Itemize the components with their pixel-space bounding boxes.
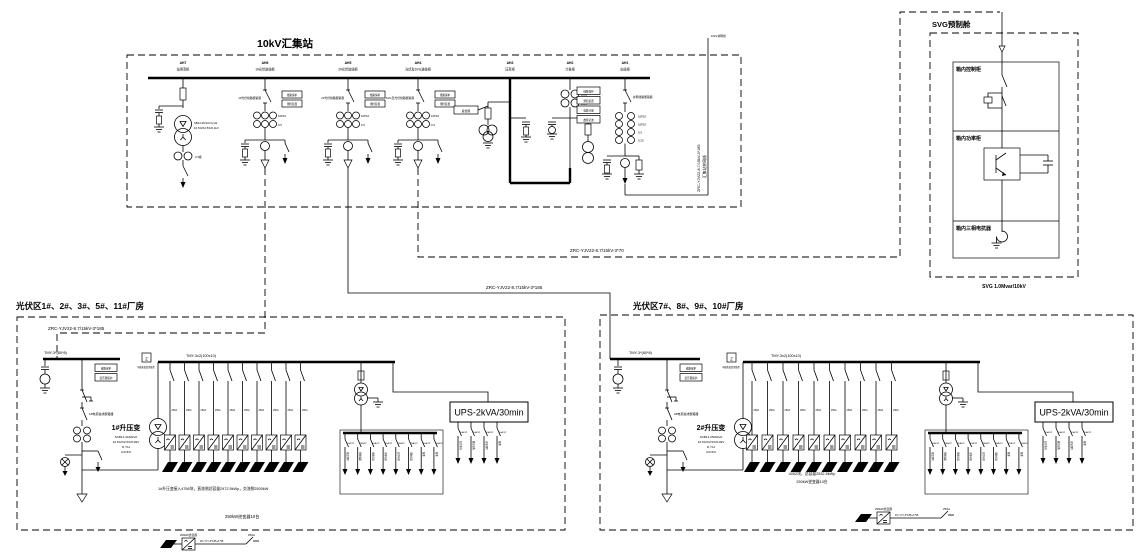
relay-box: 线路保护 (287, 93, 298, 97)
stamped-load-label: 通信设备 (1057, 441, 1061, 451)
stamped-breaker-label: 250A (785, 409, 791, 412)
inverter-strings-right: 250A250A250A250A250A250A250A250A250A250A (744, 362, 900, 472)
stamped-breaker-label: 10A/1P (486, 431, 494, 434)
inverter-strings-left: 250A250A250A250A250A250A250A250A250A250A (162, 362, 309, 472)
stamped-breaker-label: 250A (273, 409, 279, 412)
stamped-symbol (249, 362, 265, 472)
ct-label: 0.5 (361, 123, 365, 127)
stamped-breaker-label: 250A (831, 409, 837, 412)
legend-inverter-label: 250kW逆变器 (875, 507, 892, 511)
bay-id: AH4 (415, 61, 422, 65)
breaker-label: 并网线路断路器 (633, 95, 653, 99)
ct-label: 0.5 (638, 131, 642, 135)
bay-ah3: 避雷器 (454, 78, 570, 183)
relay-box: 变压器保护 (100, 376, 113, 380)
stamped-load-label: 监控电源 (397, 452, 401, 462)
relay-box: 测控装置 (370, 102, 381, 106)
stamped-symbol (264, 362, 280, 472)
breaker-label: 1#光伏线路断路器 (238, 96, 261, 100)
stamped-symbol (177, 362, 193, 472)
stamped-load-label: 备用 (498, 441, 502, 445)
stamped-load-label: 箱变照明 (931, 452, 935, 462)
stamped-breaker-label: 250A (878, 409, 884, 412)
stamped-breaker-label: 250A (847, 409, 853, 412)
inverter-count-left: 250kW逆变器10台 (225, 513, 259, 520)
stamped-load-label: 备用 (422, 452, 426, 456)
stamped-symbol (806, 362, 822, 472)
capacity-note-right-1: 4052块，总容量2532.5kWp (789, 471, 836, 476)
bay-ah7: SB14-30/10 Dyn11 10.5±2X2.5%/0.4kV 0.5级 (154, 78, 219, 188)
bay-name: 1#光伏进线柜 (255, 67, 275, 72)
meter-box-glyph: Z (145, 357, 148, 362)
relay-box: 变压器保护 (685, 376, 698, 380)
breaker-label: 2#电源进线断路器 (674, 411, 698, 416)
stamped-load-label: 风机电源 (956, 452, 960, 462)
hv-bay-right: 线路保护 变压器保护 2#电源进线断路器 (646, 359, 703, 502)
stamped-breaker-label: 10A/1P (460, 431, 468, 434)
svg-section-control: 箱内控制柜 (955, 66, 981, 73)
stamped-breaker-label: 10A/1P (1071, 431, 1079, 434)
grid-line-label: 10kV并网线 (711, 34, 726, 38)
stamped-symbol (868, 362, 884, 472)
stamped-breaker-label: 250A (302, 409, 308, 412)
stamped-breaker-label: 16A/1P (970, 442, 978, 445)
stamped-breaker-label: 250A (800, 409, 806, 412)
stamped-symbol (235, 362, 251, 472)
stamped-symbol (775, 362, 791, 472)
bay-ah6: 1#光伏线路断路器 线路保护 测控装置 10P10 0.5 (238, 78, 302, 168)
stamped-load-label: 箱变照明 (346, 452, 350, 462)
legend-inverter-label: 250kW逆变器 (180, 533, 197, 537)
station-service-transformer (175, 116, 192, 146)
stamped-breaker-label: 10A/1P (1084, 431, 1092, 434)
stamped-breaker-label: 16A/1P (436, 442, 444, 445)
pv-left-title: 光伏区1#、2#、3#、5#、11#厂房 (15, 301, 144, 311)
stamped-load-label: 通信设备 (472, 441, 476, 451)
stamped-load-label: 消防电源 (995, 452, 999, 462)
stamped-load-label: 监控电源 (982, 452, 986, 462)
aux-transformer-right (940, 362, 969, 433)
svg-section-reactor: 箱内三相电抗器 (955, 225, 992, 232)
hv-bus-label: TMY-3*(80*8) (629, 351, 653, 355)
relay-box: 电能计量 (583, 108, 594, 112)
ups-label-right: UPS-2kVA/30min (1039, 408, 1108, 418)
legend-breaker-label: 250A (943, 507, 950, 511)
stamped-symbol (191, 362, 207, 472)
stamped-load-label: 备用 (1083, 441, 1087, 445)
ct-label: 0.5 (278, 123, 282, 127)
breaker-label: 1#电源进线断路器 (89, 411, 113, 416)
trafo-spec: SB14-30/10 Dyn11 (194, 121, 218, 125)
meter-box-label: 电能质量监测装置 (137, 365, 155, 369)
bay-id: AH7 (180, 61, 187, 65)
stamped-breaker-label: 10A/1P (1045, 431, 1053, 434)
capacity-note-left: 1#升压变接入4756块，直流侧总容量2972.5kWp，交流侧2500kW (158, 486, 269, 491)
stamped-load-label: 水泵电源 (969, 452, 973, 462)
breaker-label: 2#光伏线路断路器 (321, 96, 344, 100)
stamped-load-label: 风机电源 (371, 452, 375, 462)
stamped-load-label: 水泵电源 (384, 452, 388, 462)
stamped-breaker-label: 10A/1P (1058, 431, 1066, 434)
ups-label-left: UPS-2kVA/30min (454, 408, 523, 418)
pt-arrester-branch (40, 360, 50, 393)
transformer-spec: D,Y11 (122, 445, 130, 449)
aux-panel-enclosure (925, 430, 1028, 494)
ups-feeders-right: 10A/1P监控系统10A/1P通信设备10A/1P应急照明10A/1P备用 (1041, 422, 1092, 464)
meter-box-glyph: Z (730, 357, 733, 362)
relay-box: 测控装置 (583, 99, 594, 103)
transformer-name: 1#升压变 (112, 423, 141, 432)
transformer-spec: Ud=6% (706, 450, 716, 454)
collection-station: 10kV汇集站 AH7站用变柜 AH61#光伏进线柜 AH52#光伏进线柜 AH… (127, 34, 741, 207)
stamped-breaker-label: 250A (172, 409, 178, 412)
pv-left-boundary (17, 317, 565, 530)
stamped-breaker-label: 10A/1P (499, 431, 507, 434)
legend-right: 250kW逆变器 ZC-YJY-3*185+1*95 250A (855, 507, 954, 524)
bay-id: AH1 (622, 61, 629, 65)
relay-box: 线路保护 (370, 93, 381, 97)
bay-id: AH6 (262, 61, 269, 65)
bay-id: AH2 (567, 61, 574, 65)
legend-left: 250kW逆变器 ZC-YJY-3*185+1*95 250A (160, 533, 259, 550)
stamped-breaker-label: 250A (244, 409, 250, 412)
stamped-load-label: 监控系统 (459, 441, 463, 451)
igbt-module (984, 148, 1020, 180)
cable-label-right: ZRC-YJV22-8.7/15kV-3*185 (486, 285, 543, 290)
cable-to-right-block (348, 168, 610, 359)
stamped-breaker-label: 250A (230, 409, 236, 412)
bay-headers: AH7站用变柜 AH61#光伏进线柜 AH52#光伏进线柜 AH4光伏及SVG进… (177, 61, 631, 72)
lv-bus-label: TMY-3x2(100x10) (186, 354, 217, 358)
stamped-load-label: 备用 (1007, 452, 1011, 456)
ct-label: 10P10 (638, 115, 647, 119)
stamped-breaker-label: 16A/1P (385, 442, 393, 445)
ups-feeders-left: 10A/1P监控系统10A/1P通信设备10A/1P应急照明10A/1P备用 (456, 422, 507, 464)
capacity-note-right-2: 250kW逆变器10台 (796, 479, 827, 484)
transformer-spec: SCB14-3150kVA (115, 435, 137, 439)
transformer-spec: Ud=6% (121, 450, 131, 454)
relay-box: 线路保护 (583, 89, 594, 93)
ct-label: 10P10 (638, 123, 647, 127)
relay-box: 线路保护 (440, 93, 451, 97)
stamped-breaker-label: 250A (186, 409, 192, 412)
pv-block-left: 光伏区1#、2#、3#、5#、11#厂房 TMY-3*(80*8) 线路保护 变… (15, 301, 565, 550)
stamped-symbol (791, 362, 807, 472)
ct-label: 10P10 (278, 114, 287, 118)
cable-routes: ZRC-YJV22-8.7/15kV-3*185 ZRC-YJV22-8.7/1… (48, 12, 1000, 359)
stamped-breaker-label: 16A/1P (411, 442, 419, 445)
bay-name: 光伏及SVG进线柜 (405, 67, 432, 72)
aux-feeders-right: 16A/1P箱变照明16A/1P检修插座16A/1P风机电源16A/1P水泵电源… (928, 433, 1029, 475)
bay-id: AH5 (345, 61, 352, 65)
arrester-label: 避雷器 (462, 109, 471, 113)
stamped-breaker-label: 16A/1P (996, 442, 1004, 445)
stamped-breaker-label: 16A/1P (372, 442, 380, 445)
stamped-breaker-label: 250A (769, 409, 775, 412)
stamped-breaker-label: 16A/1P (360, 442, 368, 445)
stamped-symbol (853, 362, 869, 472)
hv-bay-left: 线路保护 变压器保护 1#电源进线断路器 (61, 359, 118, 502)
bay-ah5: 2#光伏线路断路器 线路保护 测控装置 10P10 0.5 (321, 78, 385, 168)
step-up-transformer-right: 2#升压变 SCB14-2500kVA 10.5±2X2.5%/0.8kV D,… (697, 362, 752, 470)
bay-id: AH3 (507, 61, 514, 65)
stamped-symbol (162, 362, 178, 472)
stamped-breaker-label: 16A/1P (957, 442, 965, 445)
stamped-load-label: 检修插座 (359, 452, 363, 462)
stamped-breaker-label: 250A (201, 409, 207, 412)
ct-label: 10P10 (361, 114, 370, 118)
stamped-breaker-label: 250A (862, 409, 868, 412)
stamped-breaker-label: 250A (893, 409, 899, 412)
transformer-spec: D,Y11 (707, 445, 715, 449)
relay-box: 测控装置 (287, 102, 298, 106)
station-title: 10kV汇集站 (257, 37, 314, 50)
stamped-breaker-label: 250A (754, 409, 760, 412)
stamped-breaker-label: 16A/1P (932, 442, 940, 445)
transformer-spec: SCB14-2500kVA (700, 435, 722, 439)
lv-bus-label: TMY-3x2(100x10) (771, 354, 802, 358)
cable-label-left: ZRC-YJV22-8.7/15kV-3*185 (48, 326, 105, 331)
stamped-load-label: 监控系统 (1044, 441, 1048, 451)
stamped-breaker-label: 250A (215, 409, 221, 412)
stamped-symbol (206, 362, 222, 472)
stamped-breaker-label: 250A (288, 409, 294, 412)
bay-name: 2#光伏进线柜 (338, 67, 358, 72)
bay-ah4: SVG及光伏线路断路器 线路保护 测控装置 10P10 0.5 (386, 78, 455, 168)
relay-box: 测控装置 (440, 102, 451, 106)
cable-label-svg: ZRC-YJV22-8.7/15kV-3*70 (570, 248, 624, 253)
bay-name: 计量柜 (565, 67, 575, 72)
single-line-diagram: 10kV汇集站 AH7站用变柜 AH61#光伏进线柜 AH52#光伏进线柜 AH… (0, 0, 1139, 558)
stamped-breaker-label: 16A/1P (983, 442, 991, 445)
stamped-load-label: 检修插座 (944, 452, 948, 462)
stamped-load-label: 应急照明 (1070, 441, 1074, 451)
transformer-name: 2#升压变 (697, 423, 726, 432)
stamped-load-label: 应急照明 (485, 441, 489, 451)
relay-box: 线路保护 (686, 366, 697, 370)
stamped-symbol (760, 362, 776, 472)
ct-label: 0.5 (431, 123, 435, 127)
svg-cabin: SVG预制舱 箱内控制柜 箱内功率柜 箱内三相电抗器 SVG 1.0Mvar/1… (930, 12, 1078, 290)
stamped-symbol (822, 362, 838, 472)
legend-cable-label: ZC-YJY-3*185+1*95 (895, 513, 919, 517)
trafo-spec: 10.5±2X2.5%/0.4kV (194, 126, 219, 130)
stamped-load-label: 备用 (435, 452, 439, 456)
stamped-breaker-label: 16A/1P (945, 442, 953, 445)
bay-ah1: 线路保护 测控装置 电能计量 故障录波 并网线路断路器 10P10 10P10 … (577, 78, 708, 195)
stamped-symbol (293, 362, 309, 472)
pv-block-right: 光伏区7#、8#、9#、10#厂房 TMY-3*(80*8) 线路保护 变压器保… (600, 301, 1133, 530)
stamped-breaker-label: 16A/1P (423, 442, 431, 445)
svg-section-power: 箱内功率柜 (955, 135, 981, 142)
stamped-load-label: 消防电源 (410, 452, 414, 462)
ct-label: 10P10 (431, 114, 440, 118)
stamped-symbol (220, 362, 236, 472)
stamped-breaker-label: 250A (816, 409, 822, 412)
stamped-breaker-label: 10A/1P (473, 431, 481, 434)
step-up-transformer-left: 1#升压变 SCB14-3150kVA 10.5±2X2.5%/0.8kV D,… (112, 362, 167, 470)
transformer-spec: 10.5±2X2.5%/0.8kV (113, 440, 140, 444)
legend-breaker-label: 250A (248, 533, 255, 537)
relay-box: 故障录波 (583, 118, 594, 122)
ct-label: 0.2S (638, 139, 644, 143)
pv-right-title: 光伏区7#、8#、9#、10#厂房 (632, 301, 744, 311)
aux-transformer-left (355, 362, 384, 433)
stamped-symbol (744, 362, 760, 472)
bay-name: 出线柜 (620, 67, 630, 72)
grid-outgoing-line: 10kV并网线 ZRC-YJV22-8.7/15kV-3*185 汇集站并网线 (697, 34, 726, 195)
bay-name: 压变柜 (505, 67, 515, 72)
aux-panel-enclosure (340, 430, 443, 494)
stamped-symbol (837, 362, 853, 472)
bay-name: 站用变柜 (177, 67, 191, 72)
svg-cabin-title: SVG预制舱 (932, 19, 971, 29)
ct-label: 0.5级 (195, 155, 202, 159)
stamped-breaker-label: 16A/1P (1008, 442, 1016, 445)
pt-arrester-branch (613, 360, 623, 393)
legend-cable-label: ZC-YJY-3*185+1*95 (200, 539, 224, 543)
transformer-spec: 10.5±2X2.5%/0.8kV (698, 440, 725, 444)
stamped-load-label: 备用 (1020, 452, 1024, 456)
stamped-breaker-label: 16A/1P (1021, 442, 1029, 445)
stamped-breaker-label: 16A/1P (398, 442, 406, 445)
stamped-breaker-label: 250A (259, 409, 265, 412)
relay-box: 线路保护 (101, 366, 112, 370)
aux-feeders-left: 16A/1P箱变照明16A/1P检修插座16A/1P风机电源16A/1P水泵电源… (343, 433, 444, 475)
cable-to-svg (418, 12, 1000, 257)
outgoing-name-label: 汇集站并网线 (702, 155, 707, 178)
outgoing-cable-label: ZRC-YJV22-8.7/15kV-3*185 (697, 145, 701, 193)
svg-rating: SVG 1.0Mvar/10kV (982, 284, 1026, 290)
hv-bus-label: TMY-3*(80*8) (44, 351, 68, 355)
stamped-breaker-label: 16A/1P (347, 442, 355, 445)
meter-box-label: 电能质量监测装置 (722, 365, 740, 369)
stamped-symbol (278, 362, 294, 472)
breaker-label: SVG及光伏线路断路器 (386, 96, 414, 100)
stamped-symbol (884, 362, 900, 472)
